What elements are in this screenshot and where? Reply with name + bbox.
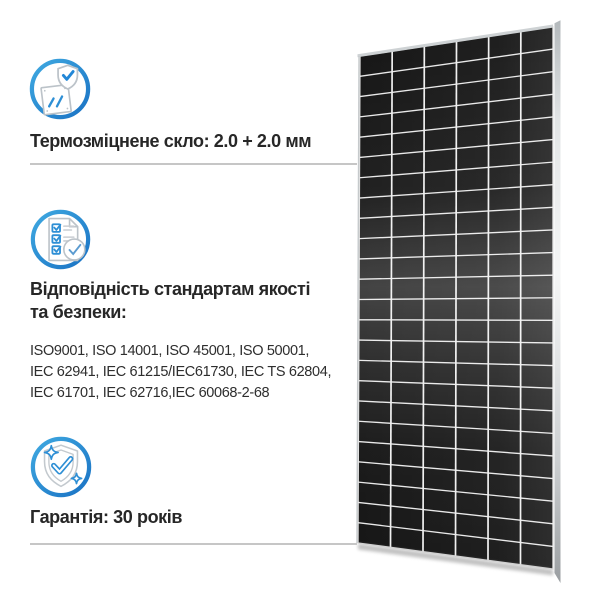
warranty-shield-icon xyxy=(30,436,92,498)
standards-checklist-icon xyxy=(30,209,91,270)
section-divider xyxy=(30,543,357,545)
section-divider xyxy=(30,163,357,165)
standards-line: IEC 61701, IEC 62716,IEC 60068-2-68 xyxy=(30,383,331,404)
warranty-title: Гарантія: 30 років xyxy=(30,506,182,529)
title-line: Гарантія: 30 років xyxy=(30,506,182,529)
panel-glare-side xyxy=(358,27,553,570)
standards-title: Відповідність стандартам якості та безпе… xyxy=(30,278,310,324)
panel-frame-right xyxy=(555,20,561,583)
standards-line: IEC 62941, IEC 61215/IEC61730, IEC TS 62… xyxy=(30,362,331,383)
title-line: Термозміцнене скло: 2.0 + 2.0 мм xyxy=(30,130,311,153)
standards-line: ISO9001, ISO 14001, ISO 45001, ISO 50001… xyxy=(30,341,331,362)
title-line: Відповідність стандартам якості xyxy=(30,278,310,301)
tempered-glass-title: Термозміцнене скло: 2.0 + 2.0 мм xyxy=(30,130,311,153)
standards-list: ISO9001, ISO 14001, ISO 45001, ISO 50001… xyxy=(30,341,331,404)
product-infographic: Термозміцнене скло: 2.0 + 2.0 мм xyxy=(0,0,600,600)
tempered-glass-icon xyxy=(29,58,91,120)
title-line: та безпеки: xyxy=(30,301,310,324)
